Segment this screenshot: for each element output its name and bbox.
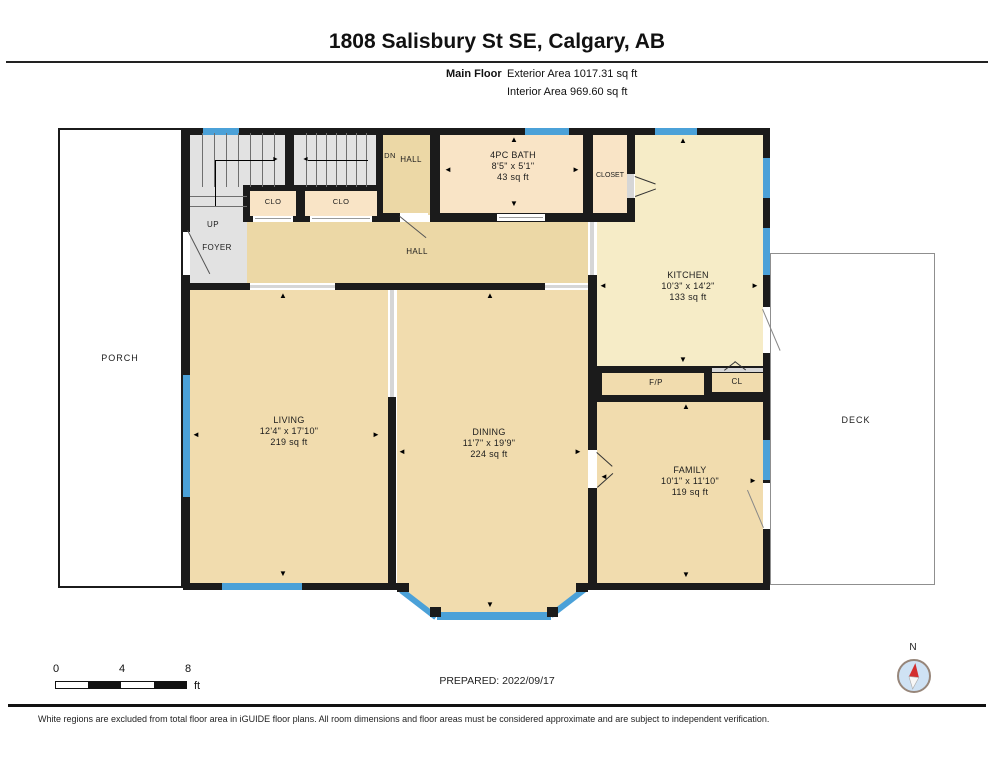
family-area: 119 sq ft <box>661 487 719 498</box>
wall-bottom-right <box>581 583 770 590</box>
kitchen-label: KITCHEN 10'3" x 14'2" 133 sq ft <box>661 270 714 303</box>
family-name: FAMILY <box>661 465 719 476</box>
stair-winder-line <box>190 196 247 197</box>
wall-stairwell <box>376 128 383 187</box>
wall-hall-bottom-a <box>190 283 250 290</box>
room-foyer-fill <box>190 187 248 285</box>
wall-bath-left <box>430 133 440 218</box>
bay-corner-4 <box>576 583 588 592</box>
stair-down-arrow-line <box>308 160 368 161</box>
family-arrow-left-icon: ◄ <box>600 473 608 481</box>
window-top-1 <box>203 128 239 135</box>
family-arrow-right-icon: ► <box>749 477 757 485</box>
wall-bath-right <box>583 133 593 220</box>
living-dims: 12'4" x 17'10" <box>260 426 319 437</box>
fp-label: F/P <box>649 378 663 387</box>
window-right-kitchen-1 <box>763 158 770 198</box>
opening-hall-living <box>250 285 335 288</box>
scale-tick-4: 4 <box>119 663 125 675</box>
cl-closet-door <box>712 368 763 372</box>
stair-up-arrow-tail <box>215 160 216 206</box>
family-arrow-down-icon: ▼ <box>682 571 690 579</box>
wall-kitchen-stub <box>588 275 597 290</box>
living-arrow-up-icon: ▲ <box>279 292 287 300</box>
wall-dining-right-bottom <box>588 488 597 583</box>
living-arrow-left-icon: ◄ <box>192 431 200 439</box>
window-right-kitchen-2 <box>763 228 770 275</box>
dn-hall-label: HALL <box>400 155 422 164</box>
bay-corner-3 <box>547 607 558 617</box>
clo2-slider-gap <box>310 216 372 222</box>
clo2-label: CLO <box>333 197 350 206</box>
compass-n-label: N <box>909 642 916 653</box>
floor-label: Main Floor <box>446 68 502 80</box>
family-dims: 10'1" x 11'10" <box>661 476 719 487</box>
dining-arrow-left-icon: ◄ <box>398 448 406 456</box>
kitchen-name: KITCHEN <box>661 270 714 281</box>
porch-label: PORCH <box>101 353 139 363</box>
window-top-3 <box>655 128 697 135</box>
bath-arrow-left-icon: ◄ <box>444 166 452 174</box>
wall-stairs-divider <box>285 128 294 187</box>
window-top-2 <box>525 128 569 135</box>
living-arrow-down-icon: ▼ <box>279 570 287 578</box>
stair-tread <box>202 133 203 187</box>
wall-hall-bottom-b <box>335 283 545 290</box>
bath-arrow-up-icon: ▲ <box>510 136 518 144</box>
kitchen-area: 133 sq ft <box>661 292 714 303</box>
bath-area: 43 sq ft <box>490 172 536 183</box>
family-deck-door-gap <box>763 483 770 529</box>
opening-hall-kitchen <box>590 222 594 275</box>
wall-living-dining <box>388 397 396 583</box>
dn-label: DN <box>384 151 396 160</box>
foyer-label: FOYER <box>202 243 232 252</box>
bay-corner-2 <box>430 607 441 617</box>
cl-label: CL <box>731 377 742 386</box>
clo1-label: CLO <box>265 197 282 206</box>
kitchen-arrow-down-icon: ▼ <box>679 356 687 364</box>
scale-tick-8: 8 <box>185 663 191 675</box>
opening-hall-dining <box>545 285 588 288</box>
up-label: UP <box>207 220 219 229</box>
bath-arrow-down-icon: ▼ <box>510 200 518 208</box>
bath-name: 4PC BATH <box>490 150 536 161</box>
family-label: FAMILY 10'1" x 11'10" 119 sq ft <box>661 465 719 498</box>
page-title: 1808 Salisbury St SE, Calgary, AB <box>0 30 994 54</box>
family-arrow-up-icon: ▲ <box>682 403 690 411</box>
dining-arrow-down-icon: ▼ <box>486 601 494 609</box>
bath-arrow-right-icon: ► <box>572 166 580 174</box>
dining-label: DINING 11'7" x 19'9" 224 sq ft <box>463 427 516 460</box>
wall-dnhall-stub <box>377 213 400 222</box>
bath-dims: 8'5" x 5'1" <box>490 161 536 172</box>
disclaimer-text: White regions are excluded from total fl… <box>38 714 769 724</box>
hall-label: HALL <box>406 247 428 256</box>
window-right-family <box>763 440 770 480</box>
window-left-living <box>183 375 190 497</box>
opening-living-dining <box>390 290 394 397</box>
scale-tick-0: 0 <box>53 663 59 675</box>
wall-closet-right-top <box>627 133 635 174</box>
dining-arrow-up-icon: ▲ <box>486 292 494 300</box>
kitchen-arrow-up-icon: ▲ <box>679 137 687 145</box>
wall-left <box>183 128 190 590</box>
compass-needle-icon <box>899 661 929 691</box>
closet-door-strip <box>627 174 634 198</box>
living-name: LIVING <box>260 415 319 426</box>
room-kitchen-fill2 <box>597 222 635 366</box>
stair-up-arrowhead-icon: ► <box>272 156 279 164</box>
living-label: LIVING 12'4" x 17'10" 219 sq ft <box>260 415 319 448</box>
header-divider <box>6 61 988 63</box>
bay-corner-1 <box>397 583 409 592</box>
clo1-slider-line <box>255 218 291 219</box>
stair-up-arrow-line <box>215 160 275 161</box>
kitchen-dims: 10'3" x 14'2" <box>661 281 714 292</box>
living-arrow-right-icon: ► <box>372 431 380 439</box>
stair-down-arrowhead-icon: ◄ <box>302 156 309 164</box>
clo2-slider-line <box>312 218 370 219</box>
clo1-slider-gap <box>253 216 293 222</box>
kitchen-arrow-left-icon: ◄ <box>599 282 607 290</box>
stair-winder-line <box>190 206 247 207</box>
dining-family-door-gap <box>588 450 597 488</box>
window-bottom-living <box>222 583 302 590</box>
exterior-area-label: Exterior Area 1017.31 sq ft <box>507 68 637 80</box>
living-area: 219 sq ft <box>260 437 319 448</box>
compass-icon <box>897 659 931 693</box>
dining-dims: 11'7" x 19'9" <box>463 438 516 449</box>
dining-arrow-right-icon: ► <box>574 448 582 456</box>
floorplan-page: 1808 Salisbury St SE, Calgary, AB Main F… <box>0 0 994 768</box>
room-kitchen-fill <box>635 133 763 366</box>
deck-label: DECK <box>841 415 870 425</box>
dining-area: 224 sq ft <box>463 449 516 460</box>
dining-name: DINING <box>463 427 516 438</box>
prepared-label: PREPARED: 2022/09/17 <box>0 675 994 687</box>
front-door-gap <box>183 232 190 275</box>
window-bay-bottom <box>437 612 551 620</box>
bath-label: 4PC BATH 8'5" x 5'1" 43 sq ft <box>490 150 536 183</box>
closet-label: CLOSET <box>596 172 624 179</box>
footer-divider <box>8 704 986 707</box>
interior-area-label: Interior Area 969.60 sq ft <box>507 86 627 98</box>
room-dnhall-fill <box>383 133 430 215</box>
kitchen-arrow-right-icon: ► <box>751 282 759 290</box>
bath-slider-line <box>499 217 543 218</box>
